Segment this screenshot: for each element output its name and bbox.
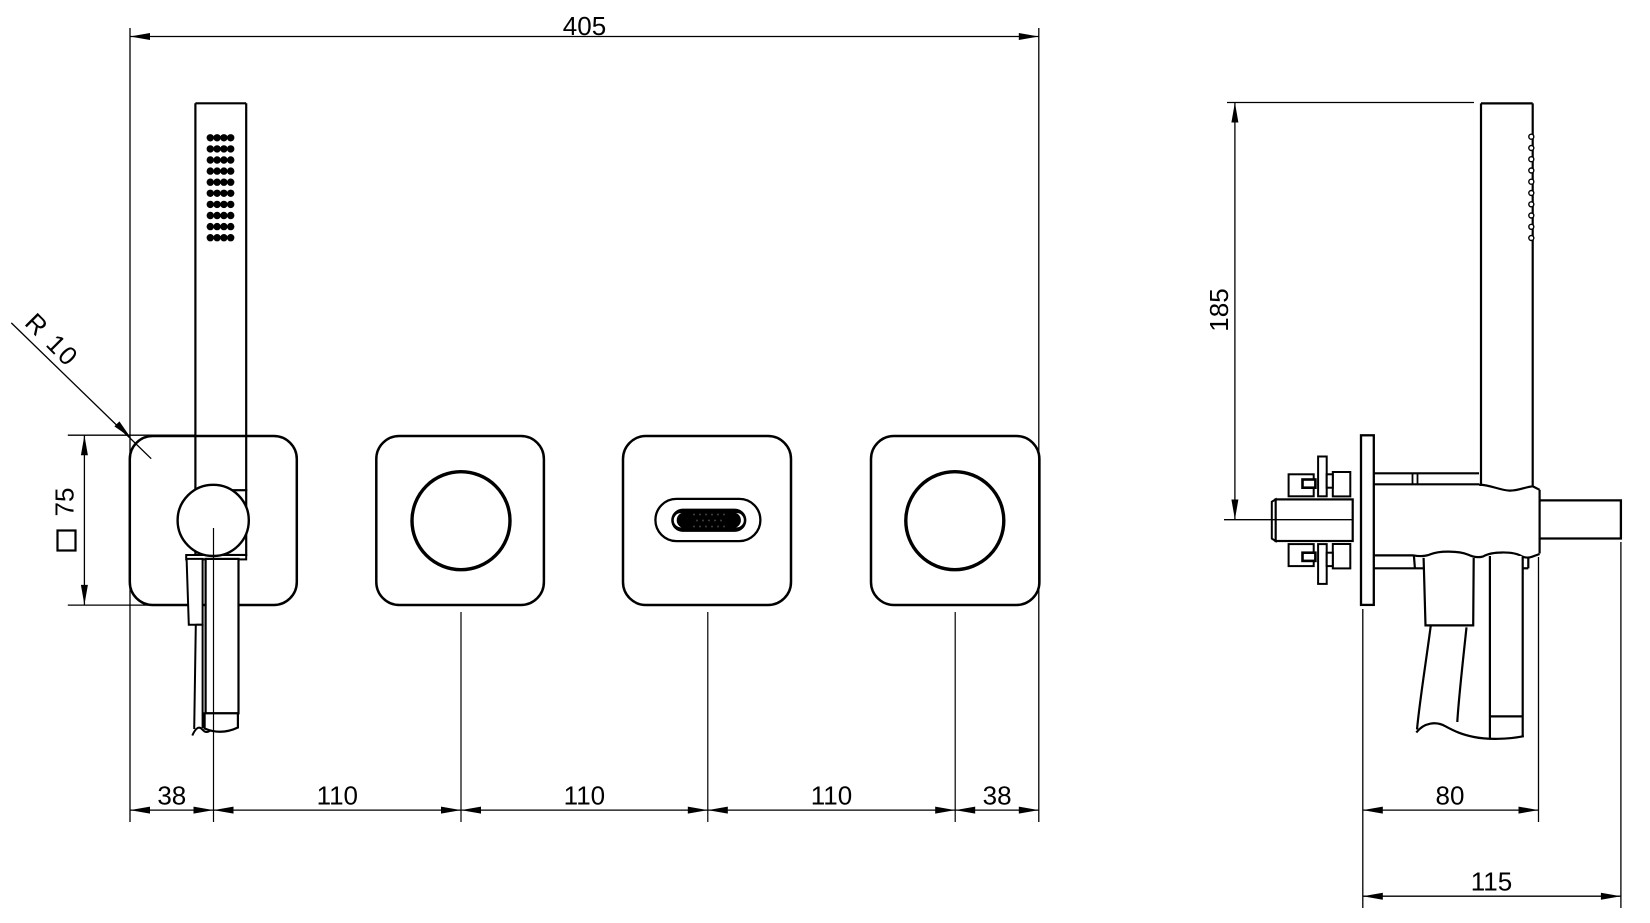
svg-text:405: 405 [563,11,606,41]
svg-text:38: 38 [983,781,1012,811]
svg-text:75: 75 [50,488,80,517]
svg-text:110: 110 [564,781,605,811]
svg-text:80: 80 [1436,781,1465,811]
svg-text:110: 110 [317,781,358,811]
svg-text:38: 38 [157,781,186,811]
svg-text:115: 115 [1471,867,1512,897]
svg-text:110: 110 [811,781,852,811]
svg-text:185: 185 [1204,288,1234,331]
